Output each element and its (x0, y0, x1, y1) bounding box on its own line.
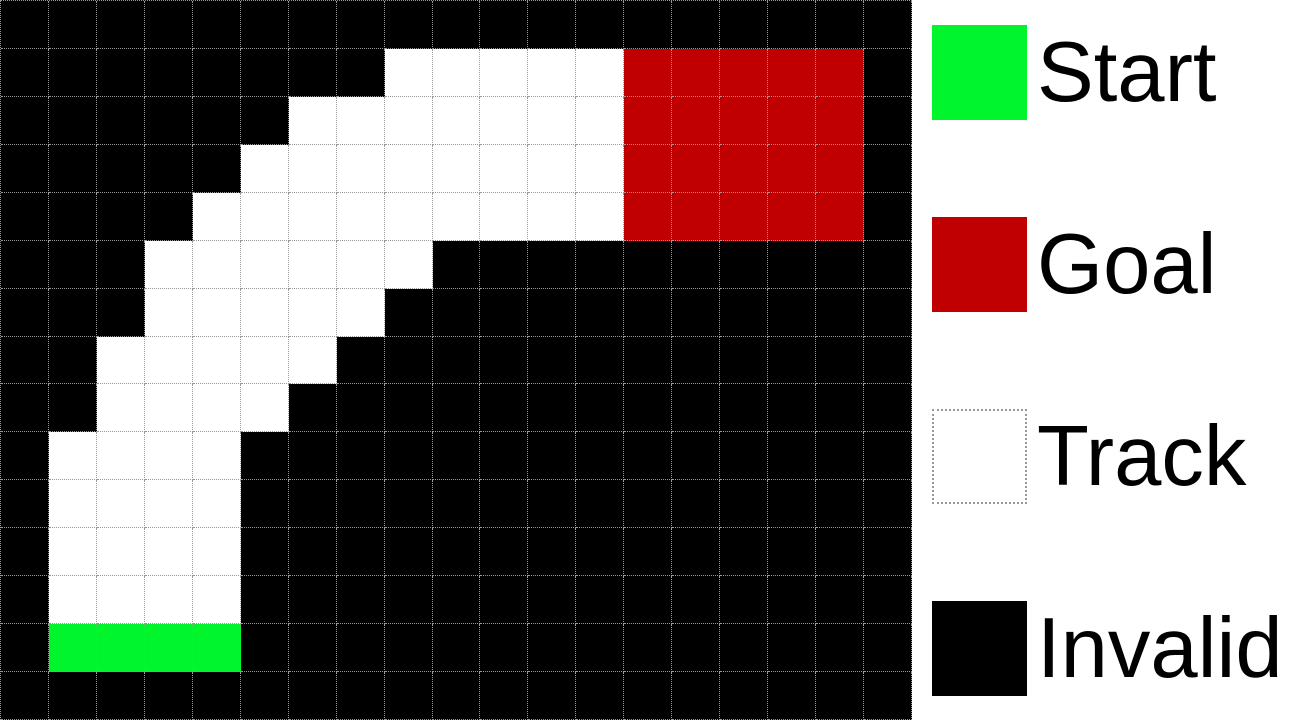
grid-cell-invalid (528, 384, 576, 432)
grid-cell-invalid (528, 480, 576, 528)
grid-cell-invalid (49, 97, 97, 145)
grid-cell-invalid (768, 1, 816, 49)
grid-cell-goal (672, 193, 720, 241)
grid-cell-invalid (528, 624, 576, 672)
grid-cell-track (97, 384, 145, 432)
grid-cell-track (241, 145, 289, 193)
grid-cell-invalid (720, 384, 768, 432)
grid-cell-invalid (49, 1, 97, 49)
grid-cell-invalid (528, 1, 576, 49)
grid-cell-invalid (864, 289, 912, 337)
grid-cell-invalid (576, 576, 624, 624)
grid-cell-invalid (864, 193, 912, 241)
grid-cell-goal (768, 97, 816, 145)
grid-cell-invalid (624, 337, 672, 385)
grid-cell-goal (816, 49, 864, 97)
grid-cell-goal (768, 145, 816, 193)
grid-cell-track (433, 145, 481, 193)
grid-cell-goal (816, 145, 864, 193)
grid-cell-track (145, 528, 193, 576)
grid-cell-track (528, 97, 576, 145)
grid-cell-invalid (864, 672, 912, 720)
grid-cell-goal (720, 97, 768, 145)
grid-cell-goal (720, 193, 768, 241)
grid-cell-invalid (480, 1, 528, 49)
grid-cell-track (337, 289, 385, 337)
grid-cell-invalid (768, 384, 816, 432)
grid-cell-invalid (720, 241, 768, 289)
grid-cell-goal (672, 49, 720, 97)
grid-cell-goal (624, 145, 672, 193)
grid-cell-track (337, 193, 385, 241)
grid-cell-invalid (1, 289, 49, 337)
grid-cell-invalid (1, 241, 49, 289)
grid-cell-invalid (97, 672, 145, 720)
grid-cell-invalid (528, 672, 576, 720)
grid-cell-invalid (576, 432, 624, 480)
grid-cell-track (97, 480, 145, 528)
grid-cell-track (145, 384, 193, 432)
grid-cell-invalid (480, 624, 528, 672)
grid-cell-invalid (289, 1, 337, 49)
grid-cell-invalid (480, 241, 528, 289)
grid-cell-invalid (672, 241, 720, 289)
grid-cell-invalid (624, 672, 672, 720)
grid-cell-invalid (768, 241, 816, 289)
grid-cell-invalid (49, 289, 97, 337)
grid-cell-track (193, 528, 241, 576)
legend-item-goal: Goal (932, 217, 1217, 312)
grid-cell-invalid (337, 528, 385, 576)
grid-cell-invalid (385, 480, 433, 528)
grid-cell-track (145, 480, 193, 528)
legend-label-goal: Goal (1037, 217, 1217, 312)
grid-cell-invalid (624, 432, 672, 480)
grid-cell-invalid (672, 480, 720, 528)
grid-cell-track (480, 49, 528, 97)
legend-label-track: Track (1037, 409, 1246, 504)
grid-cell-invalid (145, 145, 193, 193)
grid-cell-invalid (576, 528, 624, 576)
grid-cell-invalid (193, 1, 241, 49)
grid-cell-invalid (289, 528, 337, 576)
grid-cell-invalid (624, 289, 672, 337)
grid-cell-invalid (1, 145, 49, 193)
grid-cell-invalid (385, 289, 433, 337)
grid-cell-invalid (816, 337, 864, 385)
grid-cell-invalid (241, 576, 289, 624)
grid-cell-start (145, 624, 193, 672)
grid-cell-invalid (1, 1, 49, 49)
grid-cell-invalid (576, 480, 624, 528)
grid-cell-invalid (720, 289, 768, 337)
grid-cell-invalid (289, 49, 337, 97)
grid-cell-invalid (672, 576, 720, 624)
grid-cell-track (385, 97, 433, 145)
grid-cell-invalid (672, 1, 720, 49)
grid-cell-goal (672, 145, 720, 193)
grid-cell-invalid (576, 289, 624, 337)
grid-cell-invalid (528, 241, 576, 289)
grid-cell-invalid (576, 1, 624, 49)
grid-cell-start (97, 624, 145, 672)
grid-cell-invalid (97, 193, 145, 241)
grid-cell-invalid (1, 432, 49, 480)
grid-cell-invalid (337, 432, 385, 480)
grid-cell-invalid (720, 672, 768, 720)
grid-cell-invalid (385, 432, 433, 480)
grid-cell-invalid (768, 624, 816, 672)
grid-cell-invalid (49, 384, 97, 432)
grid-cell-invalid (289, 672, 337, 720)
grid-cell-track (528, 145, 576, 193)
grid-cell-invalid (385, 1, 433, 49)
grid-cell-invalid (1, 193, 49, 241)
legend-item-invalid: Invalid (932, 601, 1283, 696)
grid-cell-invalid (672, 289, 720, 337)
grid-cell-invalid (864, 97, 912, 145)
grid-cell-invalid (576, 384, 624, 432)
grid-cell-invalid (816, 241, 864, 289)
grid-cell-track (49, 432, 97, 480)
grid-cell-invalid (49, 49, 97, 97)
grid-cell-invalid (672, 432, 720, 480)
grid-cell-invalid (576, 624, 624, 672)
grid-cell-invalid (864, 480, 912, 528)
grid-cell-invalid (624, 480, 672, 528)
grid-cell-invalid (433, 528, 481, 576)
grid-cell-track (241, 193, 289, 241)
grid-cell-track (49, 480, 97, 528)
grid-cell-track (145, 289, 193, 337)
grid-cell-track (97, 576, 145, 624)
grid-cell-invalid (1, 528, 49, 576)
grid-cell-invalid (720, 576, 768, 624)
grid-cell-invalid (289, 624, 337, 672)
grid-cell-goal (624, 193, 672, 241)
grid-cell-invalid (480, 384, 528, 432)
grid-cell-invalid (97, 145, 145, 193)
grid-cell-invalid (385, 672, 433, 720)
grid-cell-track (241, 337, 289, 385)
grid-cell-invalid (1, 672, 49, 720)
grid-cell-invalid (97, 1, 145, 49)
grid-cell-invalid (1, 624, 49, 672)
grid-cell-invalid (145, 97, 193, 145)
grid-cell-invalid (433, 241, 481, 289)
grid-cell-invalid (816, 384, 864, 432)
grid-cell-invalid (433, 672, 481, 720)
grid-cell-track (337, 97, 385, 145)
grid-cell-invalid (768, 432, 816, 480)
grid-cell-track (337, 241, 385, 289)
grid-cell-invalid (385, 576, 433, 624)
grid-cell-track (193, 289, 241, 337)
grid-cell-start (193, 624, 241, 672)
grid-cell-goal (624, 49, 672, 97)
grid-cell-invalid (672, 672, 720, 720)
grid-cell-track (145, 432, 193, 480)
grid-cell-invalid (289, 432, 337, 480)
grid-cell-invalid (480, 337, 528, 385)
grid-cell-track (97, 528, 145, 576)
grid-cell-invalid (1, 337, 49, 385)
grid-cell-invalid (337, 337, 385, 385)
grid-cell-invalid (624, 241, 672, 289)
invalid-swatch (932, 601, 1027, 696)
grid-cell-track (97, 432, 145, 480)
grid-cell-invalid (672, 624, 720, 672)
grid-cell-invalid (816, 672, 864, 720)
grid-cell-goal (816, 97, 864, 145)
grid-cell-invalid (289, 384, 337, 432)
grid-cell-invalid (480, 480, 528, 528)
grid-cell-track (289, 145, 337, 193)
grid-cell-invalid (1, 480, 49, 528)
grid-cell-invalid (768, 480, 816, 528)
grid-cell-invalid (337, 672, 385, 720)
grid-cell-invalid (768, 289, 816, 337)
grid-cell-invalid (768, 528, 816, 576)
grid-cell-invalid (433, 624, 481, 672)
grid-cell-track (385, 241, 433, 289)
grid-cell-track (49, 576, 97, 624)
grid-cell-goal (720, 145, 768, 193)
grid-cell-track (193, 480, 241, 528)
grid-cell-track (385, 193, 433, 241)
grid-cell-goal (768, 49, 816, 97)
grid-cell-invalid (97, 97, 145, 145)
grid-cell-invalid (97, 49, 145, 97)
grid-cell-invalid (528, 528, 576, 576)
grid-cell-invalid (480, 432, 528, 480)
grid-cell-invalid (241, 49, 289, 97)
grid-cell-track (385, 145, 433, 193)
grid-cell-invalid (145, 672, 193, 720)
grid-cell-goal (672, 97, 720, 145)
legend-item-start: Start (932, 25, 1217, 120)
grid-cell-invalid (145, 1, 193, 49)
grid-cell-invalid (241, 624, 289, 672)
grid-cell-track (241, 384, 289, 432)
grid-cell-invalid (337, 624, 385, 672)
grid-cell-invalid (241, 480, 289, 528)
goal-swatch (932, 217, 1027, 312)
grid-cell-invalid (241, 528, 289, 576)
grid-cell-invalid (816, 289, 864, 337)
grid-cell-invalid (720, 480, 768, 528)
grid-cell-invalid (433, 289, 481, 337)
grid-cell-track (289, 289, 337, 337)
grid-cell-invalid (864, 528, 912, 576)
grid-cell-track (433, 193, 481, 241)
grid-cell-invalid (672, 384, 720, 432)
grid-cell-invalid (720, 624, 768, 672)
grid-cell-track (289, 97, 337, 145)
grid-cell-invalid (241, 97, 289, 145)
grid-cell-track (480, 97, 528, 145)
grid-cell-invalid (241, 432, 289, 480)
grid-cell-invalid (768, 672, 816, 720)
grid-cell-invalid (49, 193, 97, 241)
grid-cell-invalid (528, 432, 576, 480)
grid-cell-invalid (97, 241, 145, 289)
grid-cell-track (576, 49, 624, 97)
track-swatch (932, 409, 1027, 504)
grid-cell-invalid (864, 624, 912, 672)
grid-cell-invalid (816, 576, 864, 624)
grid-cell-invalid (385, 337, 433, 385)
racetrack-grid (0, 0, 912, 720)
grid-cell-track (576, 193, 624, 241)
grid-cell-invalid (433, 337, 481, 385)
grid-cell-invalid (768, 576, 816, 624)
grid-cell-track (193, 576, 241, 624)
grid-cell-invalid (193, 49, 241, 97)
grid-cell-track (433, 49, 481, 97)
grid-cell-invalid (433, 480, 481, 528)
grid-cell-track (576, 145, 624, 193)
grid-cell-invalid (528, 337, 576, 385)
grid-cell-invalid (864, 384, 912, 432)
grid-cell-invalid (672, 337, 720, 385)
grid-cell-invalid (624, 576, 672, 624)
grid-cell-invalid (864, 145, 912, 193)
grid-cell-invalid (433, 1, 481, 49)
grid-cell-start (49, 624, 97, 672)
grid-cell-track (193, 337, 241, 385)
grid-cell-track (193, 241, 241, 289)
grid-cell-invalid (624, 624, 672, 672)
grid-cell-track (289, 337, 337, 385)
grid-cell-track (241, 241, 289, 289)
grid-cell-invalid (672, 528, 720, 576)
legend-label-start: Start (1037, 25, 1217, 120)
grid-cell-invalid (193, 145, 241, 193)
grid-cell-invalid (337, 49, 385, 97)
grid-cell-track (241, 289, 289, 337)
grid-cell-goal (768, 193, 816, 241)
grid-cell-invalid (480, 672, 528, 720)
grid-cell-invalid (528, 576, 576, 624)
grid-cell-invalid (385, 624, 433, 672)
grid-cell-invalid (433, 384, 481, 432)
grid-cell-invalid (1, 97, 49, 145)
grid-cell-track (193, 384, 241, 432)
legend-panel: Start Goal Track Invalid (912, 0, 1302, 720)
grid-cell-track (49, 528, 97, 576)
grid-cell-track (480, 145, 528, 193)
grid-cell-track (145, 241, 193, 289)
grid-cell-invalid (385, 528, 433, 576)
grid-cell-invalid (1, 576, 49, 624)
grid-cell-invalid (49, 672, 97, 720)
grid-cell-invalid (241, 1, 289, 49)
grid-cell-track (289, 193, 337, 241)
grid-cell-invalid (1, 49, 49, 97)
grid-cell-invalid (720, 1, 768, 49)
grid-cell-invalid (624, 528, 672, 576)
grid-cell-invalid (337, 384, 385, 432)
grid-cell-track (528, 49, 576, 97)
grid-cell-invalid (528, 289, 576, 337)
grid-cell-track (193, 432, 241, 480)
grid-cell-goal (624, 97, 672, 145)
grid-cell-track (97, 337, 145, 385)
grid-cell-invalid (337, 1, 385, 49)
grid-cell-track (145, 337, 193, 385)
grid-cell-invalid (720, 432, 768, 480)
grid-cell-invalid (768, 337, 816, 385)
grid-cell-track (576, 97, 624, 145)
grid-cell-track (337, 145, 385, 193)
grid-cell-invalid (864, 241, 912, 289)
grid-cell-invalid (337, 576, 385, 624)
grid-cell-invalid (864, 49, 912, 97)
grid-cell-invalid (624, 384, 672, 432)
grid-cell-invalid (576, 337, 624, 385)
grid-cell-invalid (433, 432, 481, 480)
grid-cell-track (385, 49, 433, 97)
grid-cell-invalid (193, 97, 241, 145)
grid-cell-track (433, 97, 481, 145)
grid-cell-goal (720, 49, 768, 97)
grid-cell-invalid (864, 432, 912, 480)
grid-cell-invalid (97, 289, 145, 337)
grid-cell-invalid (49, 337, 97, 385)
grid-cell-invalid (433, 576, 481, 624)
grid-cell-invalid (289, 576, 337, 624)
grid-cell-invalid (145, 49, 193, 97)
grid-cell-invalid (720, 528, 768, 576)
grid-cell-invalid (480, 528, 528, 576)
grid-cell-track (289, 241, 337, 289)
grid-cell-track (145, 576, 193, 624)
grid-cell-invalid (145, 193, 193, 241)
grid-cell-invalid (864, 337, 912, 385)
grid-cell-invalid (241, 672, 289, 720)
racetrack-figure: Start Goal Track Invalid (0, 0, 1302, 720)
grid-cell-invalid (193, 672, 241, 720)
start-swatch (932, 25, 1027, 120)
grid-cell-invalid (576, 241, 624, 289)
grid-cell-invalid (385, 384, 433, 432)
grid-cell-invalid (816, 528, 864, 576)
grid-cell-invalid (720, 337, 768, 385)
grid-cell-track (480, 193, 528, 241)
grid-cell-invalid (480, 289, 528, 337)
grid-cell-invalid (624, 1, 672, 49)
grid-cell-track (193, 193, 241, 241)
grid-cell-invalid (816, 1, 864, 49)
grid-cell-invalid (49, 241, 97, 289)
grid-cell-invalid (1, 384, 49, 432)
grid-cell-invalid (289, 480, 337, 528)
grid-cell-goal (816, 193, 864, 241)
legend-label-invalid: Invalid (1037, 601, 1283, 696)
grid-cell-invalid (337, 480, 385, 528)
grid-cell-invalid (480, 576, 528, 624)
legend-item-track: Track (932, 409, 1246, 504)
grid-cell-invalid (864, 1, 912, 49)
grid-cell-invalid (49, 145, 97, 193)
grid-cell-invalid (576, 672, 624, 720)
grid-cell-track (528, 193, 576, 241)
grid-cell-invalid (816, 624, 864, 672)
grid-cell-invalid (816, 480, 864, 528)
grid-cell-invalid (864, 576, 912, 624)
grid-cell-invalid (816, 432, 864, 480)
